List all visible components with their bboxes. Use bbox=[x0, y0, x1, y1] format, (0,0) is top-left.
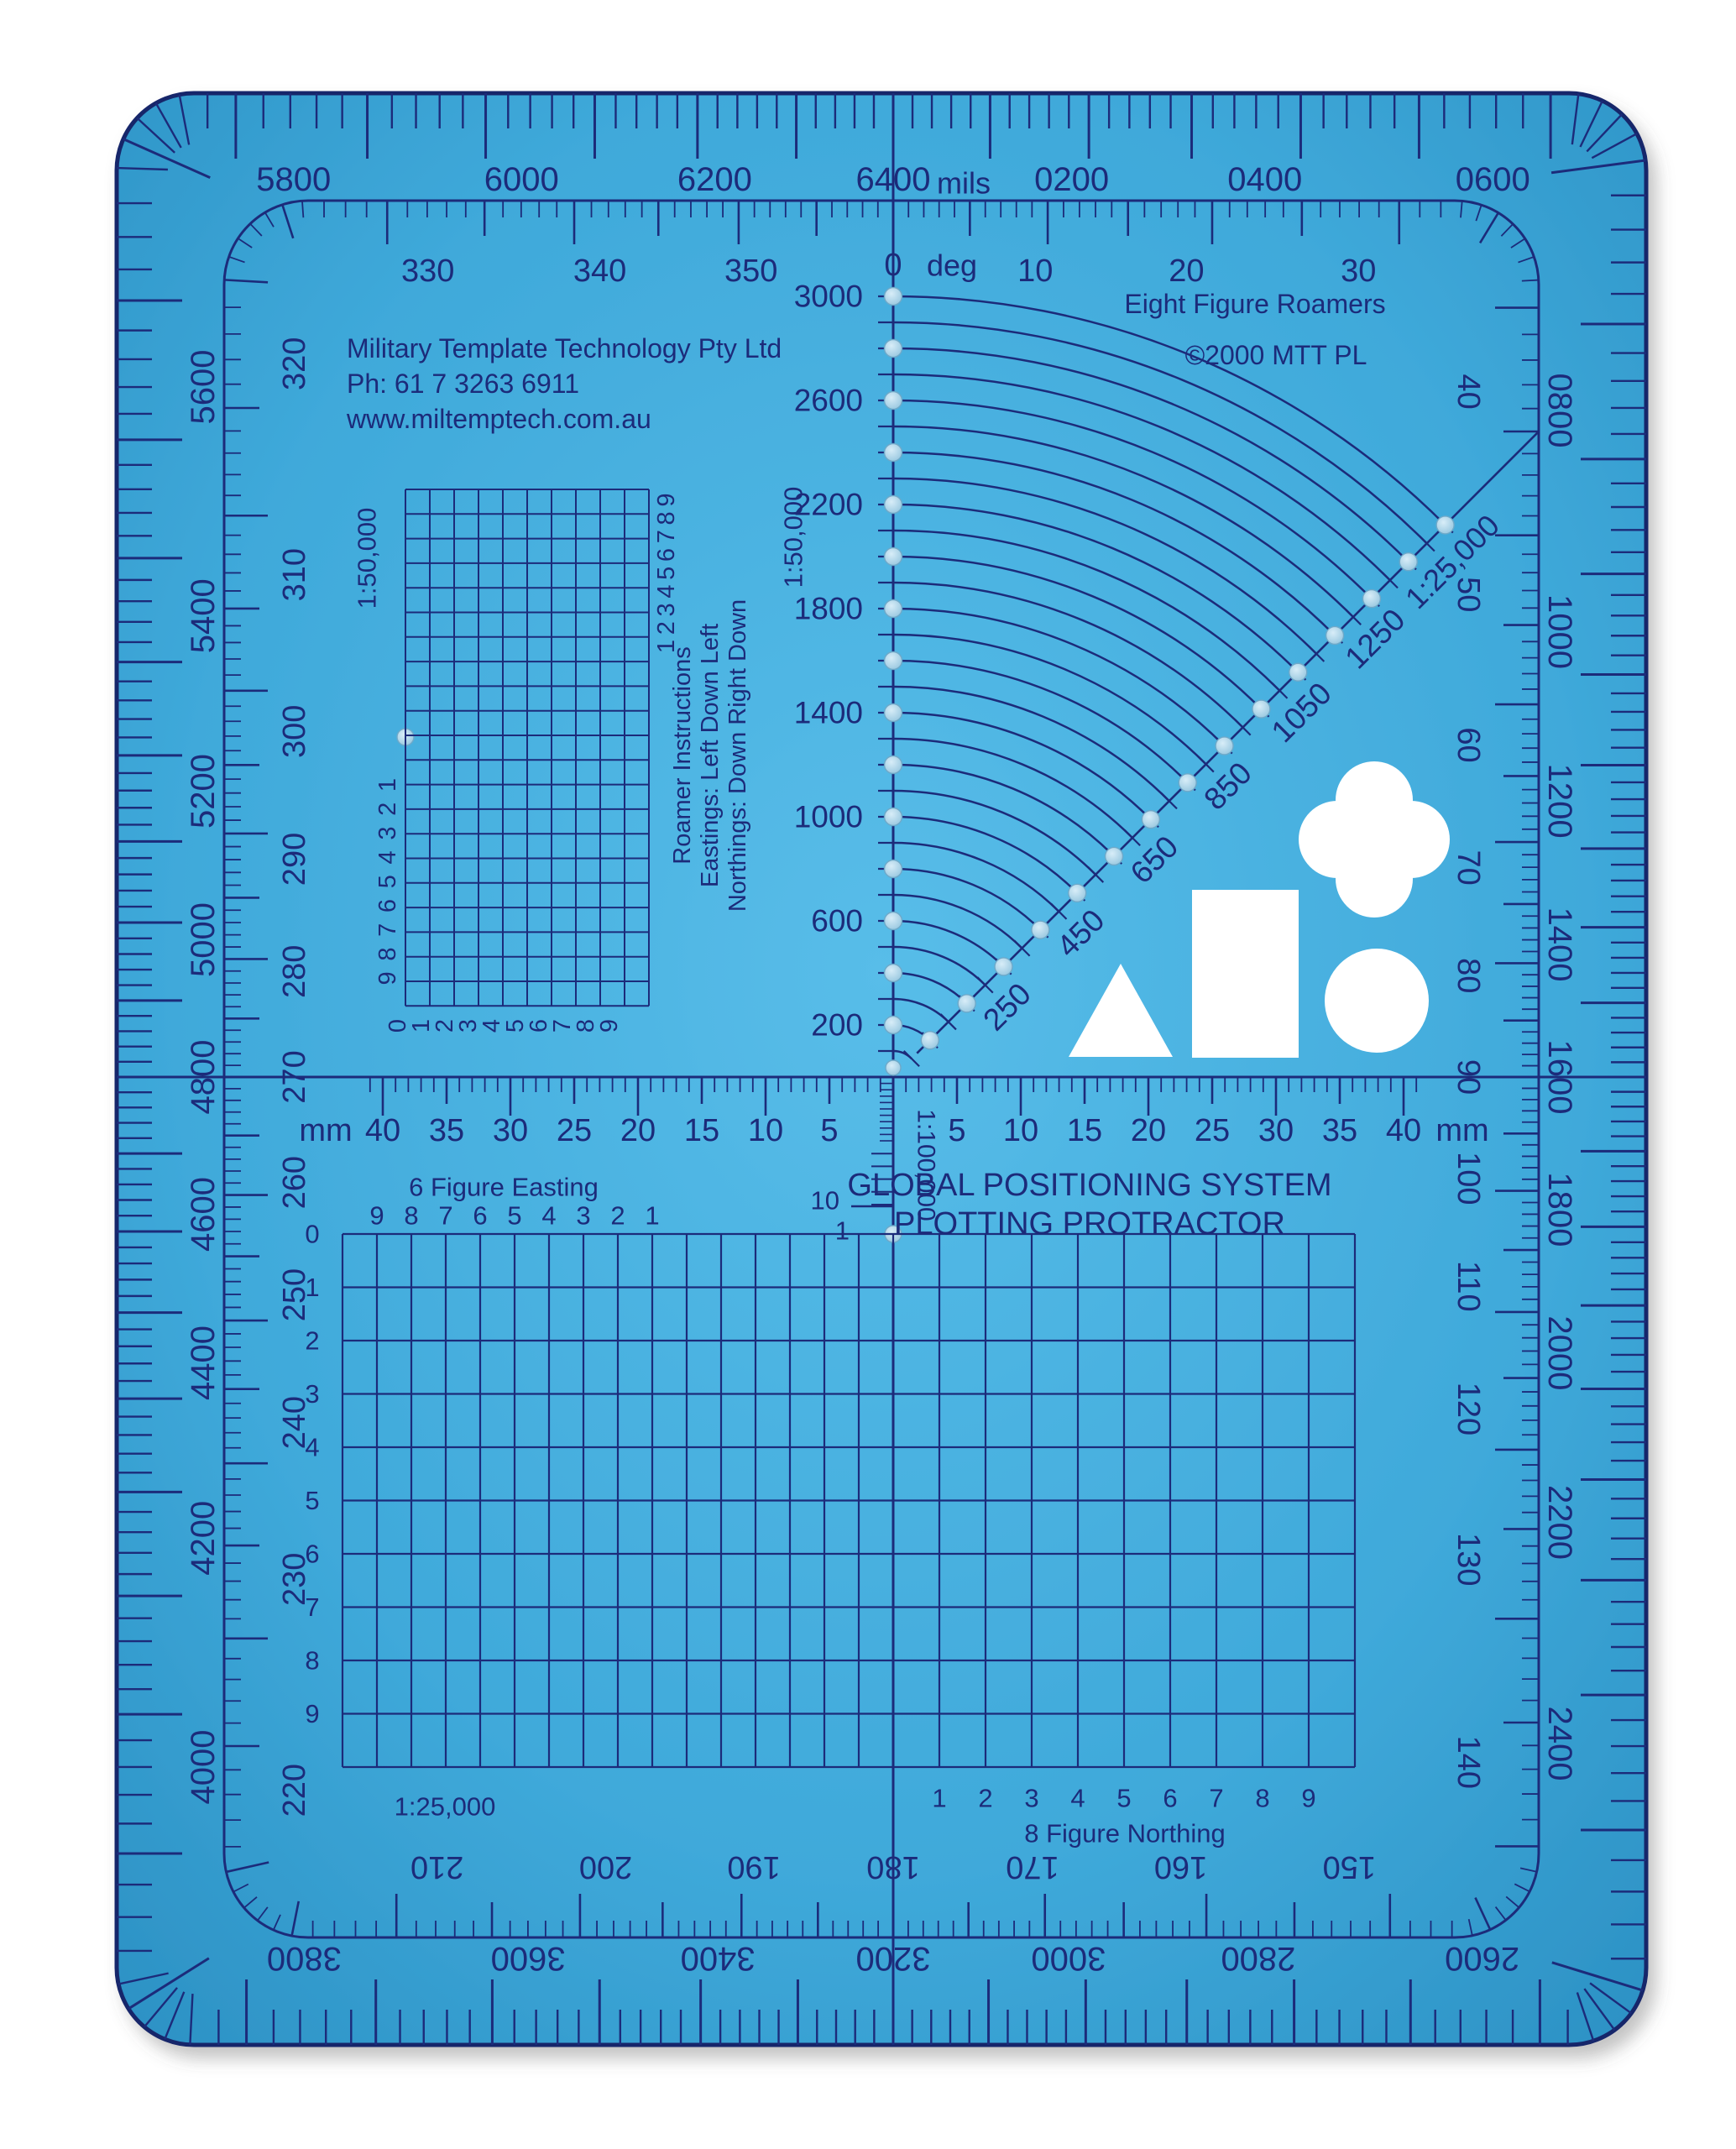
fan-axis-label-200: 200 bbox=[811, 1008, 863, 1043]
grid-row-label-1: 1 bbox=[305, 1273, 319, 1302]
mils-label-2800: 2800 bbox=[1221, 1940, 1295, 1977]
r50-right-digit-5: 5 bbox=[653, 567, 680, 580]
company-line-1: Military Template Technology Pty Ltd bbox=[347, 333, 782, 363]
grid-row-label-0: 0 bbox=[305, 1220, 319, 1249]
bead bbox=[885, 860, 902, 878]
grid-row-label-3: 3 bbox=[305, 1379, 319, 1409]
bead bbox=[885, 548, 902, 566]
roamer-instruction-2: Eastings: Left Down Left bbox=[697, 624, 724, 887]
bead bbox=[885, 965, 902, 982]
bead bbox=[885, 340, 902, 358]
bead bbox=[1436, 516, 1454, 534]
mils-label-3800: 3800 bbox=[267, 1940, 342, 1977]
mm-label-left-40: 40 bbox=[365, 1113, 400, 1148]
r50-left-digit-1: 1 bbox=[374, 778, 401, 792]
easting-col-9: 9 bbox=[369, 1201, 384, 1231]
r50-right-digit-6: 6 bbox=[653, 548, 680, 562]
mils-label-4600: 4600 bbox=[185, 1177, 222, 1252]
r50-right-digit-2: 2 bbox=[653, 621, 680, 635]
bead bbox=[885, 600, 902, 618]
mm-label-left-5: 5 bbox=[820, 1113, 838, 1148]
bead bbox=[1362, 590, 1380, 608]
bead bbox=[886, 1060, 901, 1075]
northing-col-5: 5 bbox=[1116, 1784, 1131, 1813]
fan-axis-label-3000: 3000 bbox=[794, 280, 863, 314]
mils-label-2400: 2400 bbox=[1541, 1707, 1578, 1781]
northing-title: 8 Figure Northing bbox=[1024, 1819, 1226, 1848]
degree-label-100: 100 bbox=[1451, 1152, 1486, 1205]
bead bbox=[1106, 847, 1123, 865]
bead bbox=[885, 496, 902, 514]
r100-label-10: 10 bbox=[811, 1186, 839, 1216]
title-line-1: GLOBAL POSITIONING SYSTEM bbox=[847, 1168, 1331, 1203]
degree-label-320: 320 bbox=[277, 337, 312, 390]
mils-label-5600: 5600 bbox=[185, 350, 222, 425]
degree-label-150: 150 bbox=[1323, 1849, 1376, 1885]
northing-col-8: 8 bbox=[1255, 1784, 1269, 1813]
roamer-instruction-3: Northings: Down Right Down bbox=[724, 599, 751, 912]
degree-label-60: 60 bbox=[1451, 727, 1486, 762]
roamers-title: Eight Figure Roamers bbox=[1124, 289, 1385, 319]
fan-axis-label-1800: 1800 bbox=[794, 592, 863, 626]
degree-label-350: 350 bbox=[724, 254, 777, 289]
degree-label-20: 20 bbox=[1169, 254, 1204, 289]
bead bbox=[885, 288, 902, 306]
degree-label-10: 10 bbox=[1017, 254, 1053, 289]
degree-label-220: 220 bbox=[277, 1764, 312, 1817]
r50-left-digit-7: 7 bbox=[374, 923, 401, 937]
mm-label-left-15: 15 bbox=[684, 1113, 719, 1148]
easting-col-1: 1 bbox=[645, 1201, 659, 1231]
mils-label-3400: 3400 bbox=[681, 1940, 756, 1977]
northing-col-4: 4 bbox=[1070, 1784, 1085, 1813]
degree-label-160: 160 bbox=[1154, 1849, 1207, 1885]
bead bbox=[1216, 737, 1233, 755]
mils-label-1000: 1000 bbox=[1541, 594, 1578, 669]
northing-col-6: 6 bbox=[1163, 1784, 1177, 1813]
bead bbox=[1399, 553, 1417, 571]
quatrefoil-lobe bbox=[1336, 801, 1413, 878]
bead bbox=[1179, 774, 1196, 792]
mm-label-right-20: 20 bbox=[1131, 1113, 1166, 1148]
mils-label-5800: 5800 bbox=[256, 161, 331, 198]
bead bbox=[1252, 700, 1270, 718]
degree-label-70: 70 bbox=[1451, 850, 1486, 886]
mm-unit-left: mm bbox=[299, 1113, 352, 1148]
grid-row-label-4: 4 bbox=[305, 1433, 319, 1462]
mils-label-0800: 0800 bbox=[1541, 374, 1578, 448]
fan-axis-label-1400: 1400 bbox=[794, 696, 863, 730]
bead bbox=[885, 808, 902, 826]
bead bbox=[885, 704, 902, 722]
mils-label-5400: 5400 bbox=[185, 578, 222, 653]
grid-row-label-2: 2 bbox=[305, 1326, 319, 1356]
degree-tick bbox=[1522, 280, 1539, 281]
r50-left-digit-5: 5 bbox=[374, 875, 401, 888]
r50-left-digit-4: 4 bbox=[374, 850, 401, 864]
degree-label-170: 170 bbox=[1006, 1849, 1059, 1885]
copyright: ©2000 MTT PL bbox=[1185, 340, 1367, 370]
northing-col-3: 3 bbox=[1024, 1784, 1038, 1813]
mils-label-0200: 0200 bbox=[1034, 161, 1109, 198]
mm-label-right-40: 40 bbox=[1386, 1113, 1421, 1148]
fan-axis-label-2600: 2600 bbox=[794, 384, 863, 418]
r50-right-digit-9: 9 bbox=[653, 494, 680, 507]
grid-row-label-6: 6 bbox=[305, 1540, 319, 1569]
bead bbox=[1032, 921, 1049, 939]
company-line-3: www.miltemptech.com.au bbox=[346, 404, 651, 434]
degree-label-40: 40 bbox=[1451, 374, 1486, 410]
mils-label-6200: 6200 bbox=[677, 161, 752, 198]
mm-label-left-10: 10 bbox=[748, 1113, 783, 1148]
mils-label-0600: 0600 bbox=[1456, 161, 1530, 198]
easting-col-8: 8 bbox=[404, 1201, 418, 1231]
degree-label-30: 30 bbox=[1341, 254, 1376, 289]
mils-unit-label: mils bbox=[937, 166, 991, 201]
r50-left-digit-2: 2 bbox=[374, 803, 401, 816]
mm-label-left-20: 20 bbox=[620, 1113, 656, 1148]
grid-row-label-9: 9 bbox=[305, 1699, 319, 1728]
bead bbox=[885, 392, 902, 410]
mils-label-3600: 3600 bbox=[491, 1940, 566, 1977]
degree-label-330: 330 bbox=[401, 254, 454, 289]
mils-label-5000: 5000 bbox=[185, 902, 222, 977]
company-line-2: Ph: 61 7 3263 6911 bbox=[347, 369, 579, 399]
degree-label-290: 290 bbox=[277, 833, 312, 886]
degree-label-110: 110 bbox=[1451, 1261, 1486, 1312]
degree-label-310: 310 bbox=[277, 548, 312, 601]
r50-left-digit-6: 6 bbox=[374, 899, 401, 912]
bead bbox=[995, 958, 1012, 975]
degree-label-80: 80 bbox=[1451, 958, 1486, 993]
easting-col-5: 5 bbox=[507, 1201, 521, 1231]
degree-label-120: 120 bbox=[1451, 1383, 1486, 1435]
northing-col-2: 2 bbox=[978, 1784, 992, 1813]
mils-label-4000: 4000 bbox=[185, 1730, 222, 1805]
mils-label-1400: 1400 bbox=[1541, 907, 1578, 982]
degree-label-340: 340 bbox=[573, 254, 626, 289]
mils-label-2200: 2200 bbox=[1541, 1485, 1578, 1560]
r50-bottom-digit-9: 9 bbox=[596, 1019, 623, 1033]
r50-right-digit-7: 7 bbox=[653, 530, 680, 543]
northing-col-1: 1 bbox=[932, 1784, 946, 1813]
northing-col-9: 9 bbox=[1301, 1784, 1315, 1813]
easting-title: 6 Figure Easting bbox=[409, 1173, 599, 1202]
mm-label-right-35: 35 bbox=[1322, 1113, 1357, 1148]
bead bbox=[1326, 626, 1344, 644]
r50-scale-label: 1:50,000 bbox=[353, 508, 382, 609]
mm-label-right-30: 30 bbox=[1258, 1113, 1294, 1148]
grid-row-label-7: 7 bbox=[305, 1592, 319, 1622]
bead bbox=[885, 652, 902, 670]
protractor-svg: 0200040006000800100012001400160018002000… bbox=[0, 0, 1736, 2149]
bead bbox=[958, 995, 975, 1012]
easting-col-3: 3 bbox=[576, 1201, 590, 1231]
grid-row-label-5: 5 bbox=[305, 1486, 319, 1515]
r50-right-digit-3: 3 bbox=[653, 603, 680, 616]
degree-label-130: 130 bbox=[1451, 1533, 1486, 1586]
easting-col-6: 6 bbox=[473, 1201, 487, 1231]
easting-col-4: 4 bbox=[541, 1201, 556, 1231]
mm-label-left-35: 35 bbox=[429, 1113, 464, 1148]
bead bbox=[921, 1032, 939, 1049]
title-line-2: PLOTTING PROTRACTOR bbox=[894, 1206, 1285, 1242]
bead bbox=[885, 912, 902, 930]
grid-row-label-8: 8 bbox=[305, 1646, 319, 1676]
degree-label-280: 280 bbox=[277, 945, 312, 998]
r50-left-digit-3: 3 bbox=[374, 827, 401, 840]
mils-label-4200: 4200 bbox=[185, 1501, 222, 1576]
mils-label-5200: 5200 bbox=[185, 754, 222, 829]
circle-cutout bbox=[1325, 949, 1429, 1053]
bead bbox=[1069, 884, 1086, 902]
fan-axis-label-600: 600 bbox=[811, 904, 863, 939]
mils-label-1800: 1800 bbox=[1541, 1172, 1578, 1247]
bead bbox=[885, 756, 902, 774]
easting-col-7: 7 bbox=[438, 1201, 452, 1231]
mils-label-1200: 1200 bbox=[1541, 764, 1578, 839]
bead bbox=[885, 1017, 902, 1034]
gps-plotting-protractor-photo: 0200040006000800100012001400160018002000… bbox=[0, 0, 1736, 2149]
mils-label-2000: 2000 bbox=[1541, 1315, 1578, 1390]
rectangle-cutout bbox=[1192, 890, 1299, 1058]
roamer-instruction-1: Roamer Instructions bbox=[669, 646, 696, 865]
mils-label-6000: 6000 bbox=[484, 161, 559, 198]
degree-label-140: 140 bbox=[1451, 1736, 1486, 1789]
degree-label-260: 260 bbox=[277, 1156, 312, 1209]
r50-right-digit-8: 8 bbox=[653, 511, 680, 525]
mm-label-right-25: 25 bbox=[1195, 1113, 1230, 1148]
bead bbox=[1289, 663, 1307, 681]
mm-label-right-5: 5 bbox=[948, 1113, 965, 1148]
r50-right-digit-4: 4 bbox=[653, 585, 680, 599]
mm-label-left-25: 25 bbox=[557, 1113, 592, 1148]
bead bbox=[885, 444, 902, 462]
mm-label-right-15: 15 bbox=[1067, 1113, 1102, 1148]
northing-col-7: 7 bbox=[1209, 1784, 1223, 1813]
mm-unit-right: mm bbox=[1435, 1113, 1488, 1148]
mils-label-0400: 0400 bbox=[1227, 161, 1302, 198]
r50-left-digit-9: 9 bbox=[374, 971, 401, 985]
mils-label-4400: 4400 bbox=[185, 1325, 222, 1400]
fan-axis-label-1000: 1000 bbox=[794, 800, 863, 834]
degree-label-210: 210 bbox=[410, 1849, 463, 1885]
r100-label-1: 1 bbox=[835, 1216, 850, 1246]
degree-label-190: 190 bbox=[727, 1849, 780, 1885]
mm-label-right-10: 10 bbox=[1003, 1113, 1038, 1148]
r100-scale-label: 1:100,000 bbox=[912, 1109, 940, 1221]
bottom-scale-label: 1:25,000 bbox=[395, 1792, 496, 1822]
easting-col-2: 2 bbox=[610, 1201, 625, 1231]
degree-zero-unit: deg bbox=[927, 248, 977, 283]
mils-label-3000: 3000 bbox=[1031, 1940, 1106, 1977]
r50-left-digit-8: 8 bbox=[374, 948, 401, 961]
fan-axis-scale-label: 1:50,000 bbox=[779, 487, 808, 588]
bead bbox=[1142, 811, 1159, 829]
mils-label-2600: 2600 bbox=[1445, 1940, 1519, 1977]
mm-label-left-30: 30 bbox=[493, 1113, 528, 1148]
degree-label-200: 200 bbox=[579, 1849, 632, 1885]
degree-label-300: 300 bbox=[277, 705, 312, 758]
